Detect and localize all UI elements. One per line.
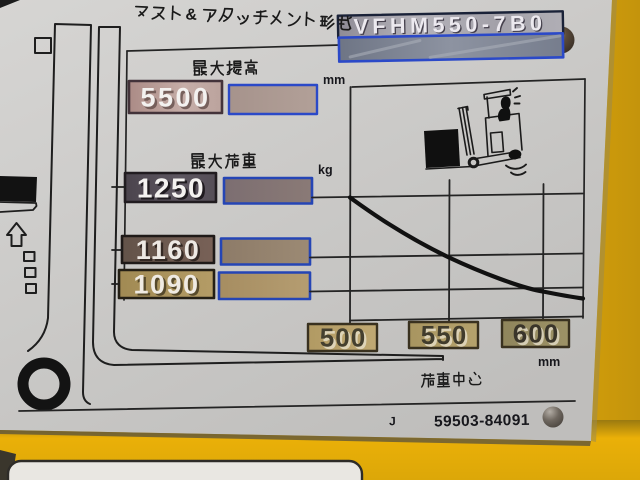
svg-text:5500: 5500 — [140, 83, 210, 113]
svg-text:550: 550 — [421, 320, 467, 350]
svg-text:59503-84091: 59503-84091 — [434, 412, 530, 431]
svg-text:1090: 1090 — [133, 270, 199, 300]
svg-text:mm: mm — [538, 355, 560, 369]
svg-text:1160: 1160 — [136, 235, 201, 265]
svg-text:600: 600 — [513, 319, 559, 349]
svg-text:mm: mm — [323, 73, 345, 87]
svg-text:J: J — [389, 414, 396, 428]
svg-text:&: & — [185, 6, 198, 24]
svg-text:kg: kg — [318, 163, 333, 177]
svg-text:1250: 1250 — [137, 173, 205, 204]
svg-text:500: 500 — [320, 323, 366, 353]
